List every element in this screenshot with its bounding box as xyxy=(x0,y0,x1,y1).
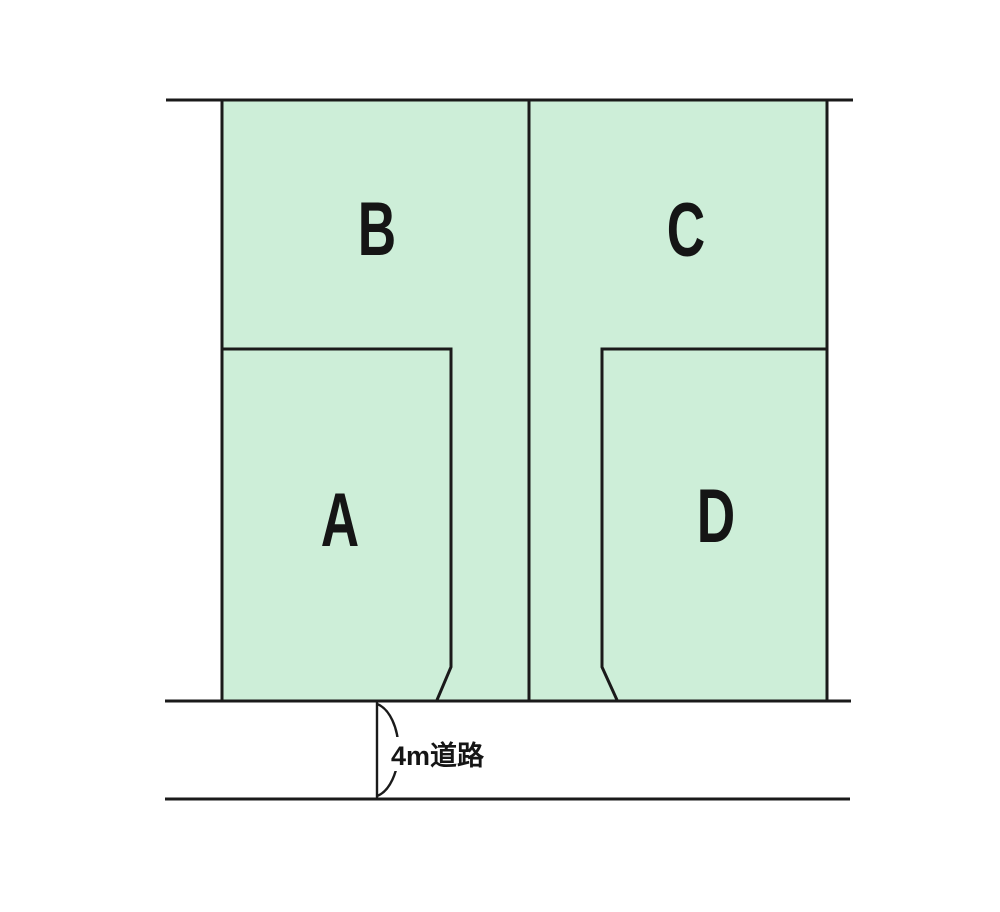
plot-d-label: D xyxy=(697,474,735,559)
plot-a-label: A xyxy=(321,478,359,563)
road-width-label: 4m道路 xyxy=(391,740,485,771)
land-subdivision-page: 4m道路 B C A D xyxy=(0,0,1000,912)
plot-c-label: C xyxy=(667,188,705,273)
land-parcel-fill xyxy=(222,100,827,701)
plot-b-label: B xyxy=(358,187,396,272)
land-plot-diagram: 4m道路 B C A D xyxy=(0,0,1000,912)
